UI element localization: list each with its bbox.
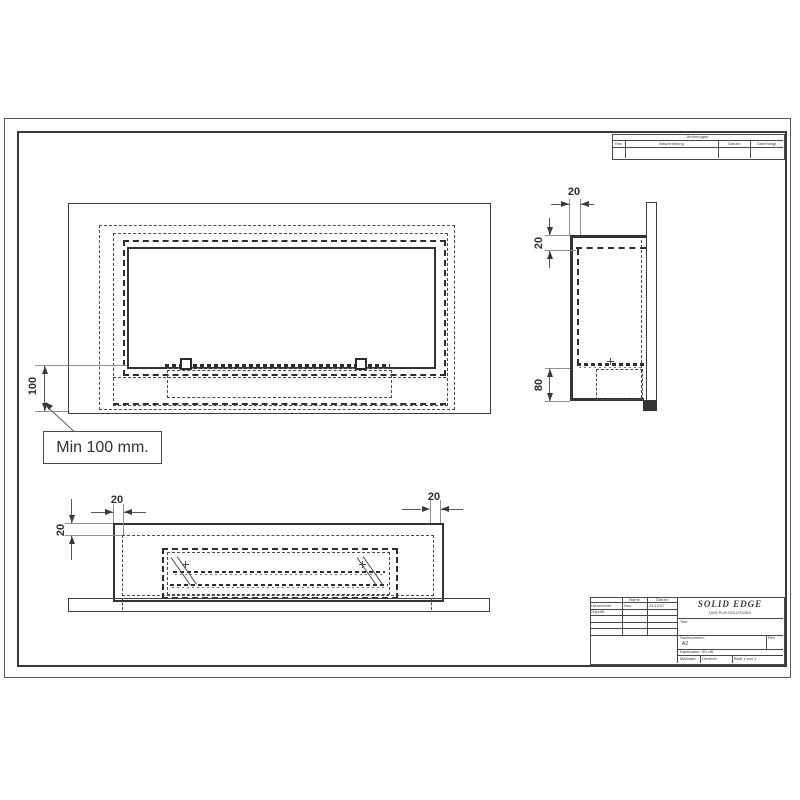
revision-col-date: Datum — [718, 142, 750, 146]
side-profile-left — [570, 235, 573, 401]
tb-scale-label: Maßstab: — [680, 657, 697, 661]
side-dim20b-arrow-d — [547, 227, 553, 235]
front-clip-right — [355, 358, 367, 370]
tb-drawn-date: 24.10.07 — [649, 604, 665, 608]
bdimL-text: 20 — [56, 512, 68, 548]
side-dim80-arrow-u — [547, 369, 553, 377]
tb-logo-subtitle: UGS PLM SOLUTIONS — [677, 611, 783, 615]
tb-sheet-label: Blatt 1 von 1 — [734, 657, 756, 661]
side-burner-wavy-dots — [579, 367, 643, 368]
bottom-wavy-2-dots — [172, 587, 386, 588]
bdimTR-line-l — [402, 509, 421, 510]
side-wall-plate-foot — [643, 400, 657, 411]
bottom-hidden-stub-l — [122, 598, 123, 610]
revision-col-rev: Rev — [612, 142, 625, 146]
bdimL-arrow-d — [69, 515, 75, 523]
bdimTL-text: 20 — [105, 495, 129, 506]
bdimTL-ext1 — [113, 504, 114, 523]
bottom-wall-plate — [68, 598, 490, 612]
revision-col-approved: Genehmigt — [750, 142, 783, 146]
tb-drawn-label: Gezeichnet — [591, 604, 611, 608]
side-dim20-arrow-r — [561, 201, 569, 207]
bdimL-ext1 — [65, 523, 113, 524]
drawing-sheet: Änderungen Rev Beschreibung Datum Genehm… — [0, 0, 800, 800]
bottom-wavy-1 — [173, 571, 385, 573]
side-hidden-top — [576, 247, 646, 249]
bdimTR-ext1 — [430, 500, 431, 523]
side-dim20b-arrow-u — [547, 251, 553, 259]
dim-100-arrow-up — [42, 366, 48, 374]
front-burner-tray-dashed — [167, 370, 392, 398]
front-hidden-line — [113, 377, 446, 378]
side-burner-wavy-line — [577, 363, 645, 366]
side-hidden-left — [577, 249, 579, 365]
tb-checked-label: Geprüft — [591, 610, 604, 614]
side-profile-top — [570, 235, 647, 238]
side-wall-plate — [646, 202, 657, 411]
revision-col-description: Beschreibung — [625, 142, 718, 146]
tb-size: A2 — [682, 642, 688, 647]
front-glass-opening — [127, 247, 436, 369]
callout-min-100: Min 100 mm. — [43, 431, 162, 464]
side-center-mark-v — [610, 358, 611, 365]
tb-logo: SOLID EDGE — [677, 600, 783, 609]
bdimL-arrow-u — [69, 536, 75, 544]
front-hidden-line-bold — [113, 403, 446, 405]
side-dim80-arrow-d — [547, 393, 553, 401]
side-dim80-ext2 — [545, 401, 570, 402]
bdimTR-arrow-l — [441, 506, 449, 512]
bottom-mark-r-v — [362, 561, 363, 568]
bdimTR-arrow-r — [422, 506, 430, 512]
bottom-wavy-2 — [170, 584, 388, 586]
side-burner-tray-dashed — [596, 369, 643, 400]
bottom-mark-l-v — [185, 561, 186, 568]
tb-drawn-name: Hou — [624, 604, 631, 608]
tb-date-header: Datum — [647, 598, 677, 602]
tb-title-label: Titel — [680, 620, 687, 624]
callout-text: Min 100 mm. — [56, 439, 148, 457]
side-dim20b-text: 20 — [534, 225, 546, 261]
bottom-hidden-stub-r — [431, 598, 432, 610]
tb-name-header: Name — [622, 598, 647, 602]
bdimTL-arrow-r — [105, 509, 113, 515]
bottom-wavy-1-dots — [175, 574, 383, 575]
side-dim80-text: 80 — [534, 367, 546, 403]
tb-weight-label: Gewicht: — [702, 657, 718, 661]
bdimTR-text: 20 — [422, 492, 446, 503]
tb-partno-label: Sachnummer: — [680, 636, 705, 640]
bdimTL-arrow-l — [124, 509, 132, 515]
front-clip-left — [180, 358, 192, 370]
tb-filename: Dateiname: SO.dft — [680, 650, 713, 654]
side-dim20-arrow-l — [581, 201, 589, 207]
side-dim20b-ext1 — [545, 235, 570, 236]
dim-100-text: 100 — [28, 370, 40, 402]
dim-100-ext-top — [35, 365, 127, 366]
revision-table-title: Änderungen — [612, 135, 783, 139]
tb-rev-label: Rev — [768, 636, 775, 640]
side-dim20-text: 20 — [562, 187, 586, 198]
